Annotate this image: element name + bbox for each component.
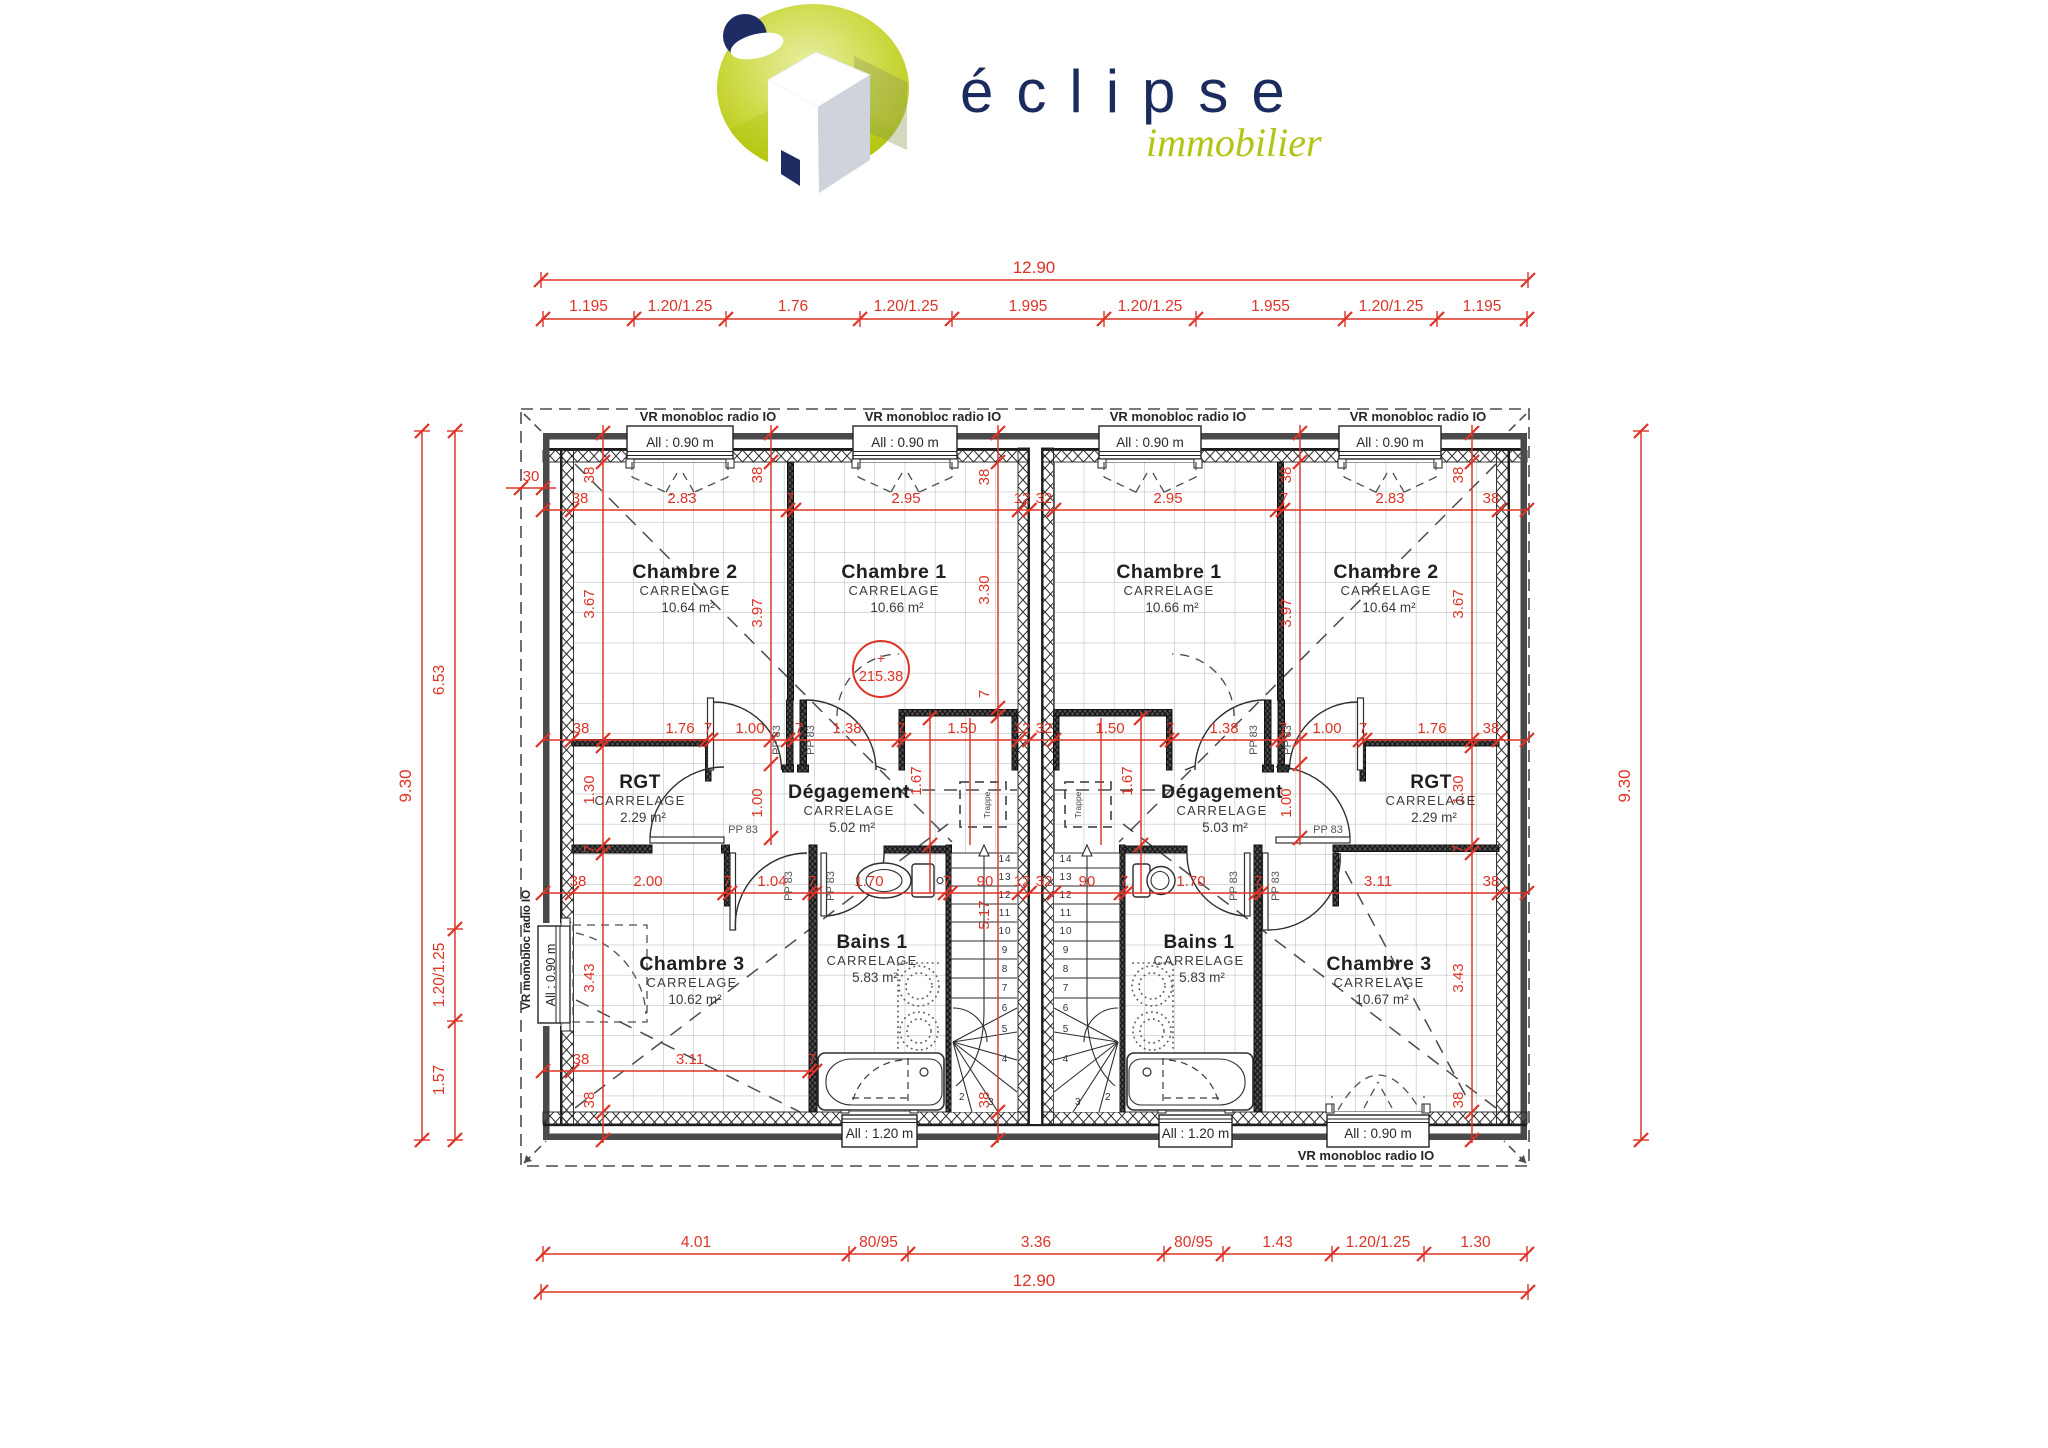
svg-text:215.38: 215.38 xyxy=(859,669,903,685)
svg-text:9.30: 9.30 xyxy=(1615,769,1634,802)
svg-text:CARRELAGE: CARRELAGE xyxy=(849,583,940,598)
svg-text:RGT: RGT xyxy=(619,772,661,793)
svg-text:7: 7 xyxy=(581,845,598,853)
svg-text:+: + xyxy=(877,650,885,666)
svg-text:PP 83: PP 83 xyxy=(771,725,783,755)
svg-text:3.97: 3.97 xyxy=(1278,598,1295,627)
svg-text:38: 38 xyxy=(976,469,993,486)
svg-text:2.29 m²: 2.29 m² xyxy=(620,810,666,825)
svg-text:RGT: RGT xyxy=(1410,772,1452,793)
svg-text:6.53: 6.53 xyxy=(431,665,448,695)
svg-text:All : 1.20 m: All : 1.20 m xyxy=(1162,1126,1230,1141)
svg-text:3.30: 3.30 xyxy=(976,575,993,604)
svg-text:PP 83: PP 83 xyxy=(1313,824,1343,836)
svg-text:Bains 1: Bains 1 xyxy=(1163,932,1234,953)
svg-text:38: 38 xyxy=(581,1092,598,1109)
svg-text:9.30: 9.30 xyxy=(396,769,415,802)
svg-text:All : 0.90 m: All : 0.90 m xyxy=(1116,435,1184,450)
svg-text:2.95: 2.95 xyxy=(1153,490,1182,507)
svg-text:Dégagement: Dégagement xyxy=(788,781,910,803)
svg-text:38: 38 xyxy=(749,467,766,484)
svg-text:12: 12 xyxy=(1059,890,1072,901)
svg-text:2.29 m²: 2.29 m² xyxy=(1411,810,1457,825)
svg-text:7: 7 xyxy=(723,873,731,890)
svg-text:All : 0.90 m: All : 0.90 m xyxy=(544,944,558,1007)
svg-text:4: 4 xyxy=(1002,1054,1009,1065)
svg-text:7: 7 xyxy=(1254,873,1262,890)
svg-text:1.76: 1.76 xyxy=(1417,720,1446,737)
svg-text:PP 83: PP 83 xyxy=(825,871,837,901)
svg-text:3.43: 3.43 xyxy=(1450,963,1467,992)
svg-text:VR monobloc radio IO: VR monobloc radio IO xyxy=(519,890,533,1010)
svg-text:PP 83: PP 83 xyxy=(1228,871,1240,901)
svg-text:3.67: 3.67 xyxy=(581,589,598,618)
svg-text:Trappe: Trappe xyxy=(982,791,992,818)
svg-text:2.00: 2.00 xyxy=(633,873,662,890)
svg-text:10.62 m²: 10.62 m² xyxy=(668,992,722,1007)
svg-text:5.02 m²: 5.02 m² xyxy=(829,820,875,835)
svg-text:VR monobloc radio IO: VR monobloc radio IO xyxy=(1298,1148,1435,1163)
svg-text:6: 6 xyxy=(1002,1003,1009,1014)
svg-text:éclipse: éclipse xyxy=(960,58,1308,125)
svg-text:2: 2 xyxy=(959,1092,965,1103)
svg-text:7: 7 xyxy=(1359,720,1367,737)
svg-text:3.11: 3.11 xyxy=(1364,873,1392,890)
svg-text:6: 6 xyxy=(1063,1003,1070,1014)
svg-text:All : 0.90 m: All : 0.90 m xyxy=(1344,1126,1412,1141)
svg-text:1.20/1.25: 1.20/1.25 xyxy=(1359,298,1424,315)
svg-text:80/95: 80/95 xyxy=(859,1234,898,1251)
svg-text:10.67 m²: 10.67 m² xyxy=(1355,992,1409,1007)
svg-text:7: 7 xyxy=(704,720,712,737)
svg-text:7: 7 xyxy=(1450,845,1467,853)
svg-text:32: 32 xyxy=(1036,490,1053,507)
svg-text:PP 83: PP 83 xyxy=(805,725,817,755)
svg-text:14: 14 xyxy=(998,854,1011,865)
svg-text:CARRELAGE: CARRELAGE xyxy=(595,793,686,808)
svg-text:1.43: 1.43 xyxy=(1262,1234,1292,1251)
svg-text:Chambre 3: Chambre 3 xyxy=(639,953,744,975)
svg-text:2: 2 xyxy=(1105,1092,1111,1103)
svg-text:1.70: 1.70 xyxy=(854,873,883,890)
svg-text:VR monobloc radio IO: VR monobloc radio IO xyxy=(1110,409,1247,424)
svg-text:1.67: 1.67 xyxy=(1119,766,1136,795)
svg-text:VR monobloc radio IO: VR monobloc radio IO xyxy=(1350,409,1487,424)
svg-text:1.57: 1.57 xyxy=(431,1065,448,1095)
svg-text:1.00: 1.00 xyxy=(735,720,764,737)
svg-text:12.90: 12.90 xyxy=(1013,258,1056,277)
svg-text:38: 38 xyxy=(1278,467,1295,484)
svg-text:12: 12 xyxy=(1014,873,1031,890)
svg-text:38: 38 xyxy=(1483,720,1500,737)
svg-text:CARRELAGE: CARRELAGE xyxy=(1154,953,1245,968)
svg-text:VR monobloc radio IO: VR monobloc radio IO xyxy=(640,409,777,424)
svg-text:CARRELAGE: CARRELAGE xyxy=(804,803,895,818)
svg-text:5: 5 xyxy=(1002,1024,1009,1035)
svg-text:1.195: 1.195 xyxy=(1463,298,1502,315)
svg-text:10: 10 xyxy=(1059,926,1072,937)
svg-text:Dégagement: Dégagement xyxy=(1161,781,1283,803)
svg-text:All : 1.20 m: All : 1.20 m xyxy=(846,1126,914,1141)
svg-text:CARRELAGE: CARRELAGE xyxy=(827,953,918,968)
svg-text:7: 7 xyxy=(786,490,794,507)
svg-text:3: 3 xyxy=(1075,1097,1081,1108)
svg-text:3.36: 3.36 xyxy=(1021,1234,1051,1251)
svg-text:1.76: 1.76 xyxy=(665,720,694,737)
svg-text:10: 10 xyxy=(998,926,1011,937)
svg-text:5.83 m²: 5.83 m² xyxy=(1179,970,1225,985)
svg-text:3.67: 3.67 xyxy=(1450,589,1467,618)
svg-text:11: 11 xyxy=(999,908,1011,919)
svg-text:38: 38 xyxy=(1450,1092,1467,1109)
svg-text:32: 32 xyxy=(1036,720,1053,737)
svg-text:All : 0.90 m: All : 0.90 m xyxy=(871,435,939,450)
svg-text:38: 38 xyxy=(573,720,590,737)
svg-text:Chambre 3: Chambre 3 xyxy=(1326,953,1431,975)
svg-text:7: 7 xyxy=(1063,983,1070,994)
svg-text:38: 38 xyxy=(570,873,587,890)
svg-text:38: 38 xyxy=(1483,873,1500,890)
svg-text:5.17: 5.17 xyxy=(976,900,993,929)
svg-text:CARRELAGE: CARRELAGE xyxy=(1124,583,1215,598)
svg-text:7: 7 xyxy=(795,720,803,737)
svg-text:90: 90 xyxy=(1079,873,1096,890)
svg-text:1.995: 1.995 xyxy=(1009,298,1048,315)
svg-text:7: 7 xyxy=(808,1051,816,1068)
svg-text:1.20/1.25: 1.20/1.25 xyxy=(431,943,448,1008)
svg-text:12.90: 12.90 xyxy=(1013,1271,1056,1290)
svg-text:7: 7 xyxy=(976,690,993,698)
svg-text:PP 83: PP 83 xyxy=(783,871,795,901)
svg-text:38: 38 xyxy=(976,1092,993,1109)
svg-text:32: 32 xyxy=(1036,873,1053,890)
svg-text:Chambre 1: Chambre 1 xyxy=(841,561,946,583)
svg-text:All : 0.90 m: All : 0.90 m xyxy=(1356,435,1424,450)
svg-text:5: 5 xyxy=(1063,1024,1070,1035)
svg-text:1.955: 1.955 xyxy=(1251,298,1290,315)
svg-text:Chambre 2: Chambre 2 xyxy=(1333,561,1438,583)
svg-text:1.76: 1.76 xyxy=(778,298,808,315)
svg-text:CARRELAGE: CARRELAGE xyxy=(1334,975,1425,990)
svg-text:38: 38 xyxy=(573,1051,590,1068)
svg-text:1.70: 1.70 xyxy=(1176,873,1205,890)
svg-text:12: 12 xyxy=(998,890,1011,901)
svg-text:1.38: 1.38 xyxy=(832,720,861,737)
svg-text:14: 14 xyxy=(1059,854,1072,865)
svg-text:VR monobloc radio IO: VR monobloc radio IO xyxy=(865,409,1002,424)
svg-text:Trappe: Trappe xyxy=(1073,791,1083,818)
svg-text:10.64 m²: 10.64 m² xyxy=(1362,600,1416,615)
svg-text:7: 7 xyxy=(1280,490,1288,507)
svg-text:CARRELAGE: CARRELAGE xyxy=(1341,583,1432,598)
svg-text:Chambre 2: Chambre 2 xyxy=(632,561,737,583)
svg-text:Bains 1: Bains 1 xyxy=(836,932,907,953)
svg-text:1.50: 1.50 xyxy=(947,720,976,737)
svg-text:30: 30 xyxy=(523,468,540,485)
svg-text:PP 83: PP 83 xyxy=(1270,871,1282,901)
svg-text:10.64 m²: 10.64 m² xyxy=(661,600,715,615)
svg-text:1.67: 1.67 xyxy=(908,766,925,795)
svg-text:PP 83: PP 83 xyxy=(728,824,758,836)
svg-text:8: 8 xyxy=(1063,964,1070,975)
svg-text:CARRELAGE: CARRELAGE xyxy=(640,583,731,598)
svg-text:12: 12 xyxy=(1014,490,1031,507)
svg-text:2.95: 2.95 xyxy=(891,490,920,507)
svg-text:3.11: 3.11 xyxy=(676,1051,704,1068)
svg-text:1.20/1.25: 1.20/1.25 xyxy=(874,298,939,315)
svg-text:immobilier: immobilier xyxy=(1146,120,1322,165)
svg-text:8: 8 xyxy=(1002,964,1009,975)
svg-text:CARRELAGE: CARRELAGE xyxy=(1386,793,1477,808)
svg-text:2.83: 2.83 xyxy=(1375,490,1404,507)
svg-text:38: 38 xyxy=(572,490,589,507)
svg-text:7: 7 xyxy=(1120,873,1128,890)
svg-text:1.00: 1.00 xyxy=(749,788,766,817)
svg-text:4.01: 4.01 xyxy=(681,1234,711,1251)
svg-text:3.43: 3.43 xyxy=(581,963,598,992)
svg-text:1.195: 1.195 xyxy=(569,298,608,315)
svg-text:1.30: 1.30 xyxy=(1460,1234,1491,1251)
svg-text:13: 13 xyxy=(1059,872,1072,883)
svg-text:1.50: 1.50 xyxy=(1095,720,1124,737)
svg-text:1.20/1.25: 1.20/1.25 xyxy=(1118,298,1183,315)
svg-text:CARRELAGE: CARRELAGE xyxy=(1177,803,1268,818)
svg-text:CARRELAGE: CARRELAGE xyxy=(647,975,738,990)
svg-text:3.97: 3.97 xyxy=(749,598,766,627)
svg-text:7: 7 xyxy=(808,873,816,890)
svg-text:PP 83: PP 83 xyxy=(1282,725,1294,755)
svg-text:38: 38 xyxy=(581,467,598,484)
svg-text:9: 9 xyxy=(1002,945,1009,956)
svg-text:90: 90 xyxy=(977,873,994,890)
svg-text:All : 0.90 m: All : 0.90 m xyxy=(646,435,714,450)
svg-text:2.83: 2.83 xyxy=(667,490,696,507)
svg-text:9: 9 xyxy=(1063,945,1070,956)
svg-text:5.03 m²: 5.03 m² xyxy=(1202,820,1248,835)
svg-text:1.20/1.25: 1.20/1.25 xyxy=(648,298,713,315)
svg-text:Chambre 1: Chambre 1 xyxy=(1116,561,1221,583)
svg-text:7: 7 xyxy=(1002,983,1009,994)
svg-text:1.00: 1.00 xyxy=(1312,720,1341,737)
svg-text:10.66 m²: 10.66 m² xyxy=(1145,600,1199,615)
svg-text:38: 38 xyxy=(1483,490,1500,507)
svg-text:4: 4 xyxy=(1063,1054,1070,1065)
svg-text:38: 38 xyxy=(1450,467,1467,484)
svg-text:7: 7 xyxy=(897,720,905,737)
svg-text:13: 13 xyxy=(998,872,1011,883)
svg-text:PP 83: PP 83 xyxy=(1248,725,1260,755)
svg-text:7: 7 xyxy=(943,873,951,890)
svg-text:12: 12 xyxy=(1014,720,1031,737)
svg-text:1.38: 1.38 xyxy=(1209,720,1238,737)
svg-text:10.66 m²: 10.66 m² xyxy=(870,600,924,615)
svg-text:7: 7 xyxy=(1166,720,1174,737)
svg-text:1.20/1.25: 1.20/1.25 xyxy=(1346,1234,1411,1251)
svg-text:5.83 m²: 5.83 m² xyxy=(852,970,898,985)
svg-text:80/95: 80/95 xyxy=(1174,1234,1213,1251)
svg-text:11: 11 xyxy=(1060,908,1072,919)
